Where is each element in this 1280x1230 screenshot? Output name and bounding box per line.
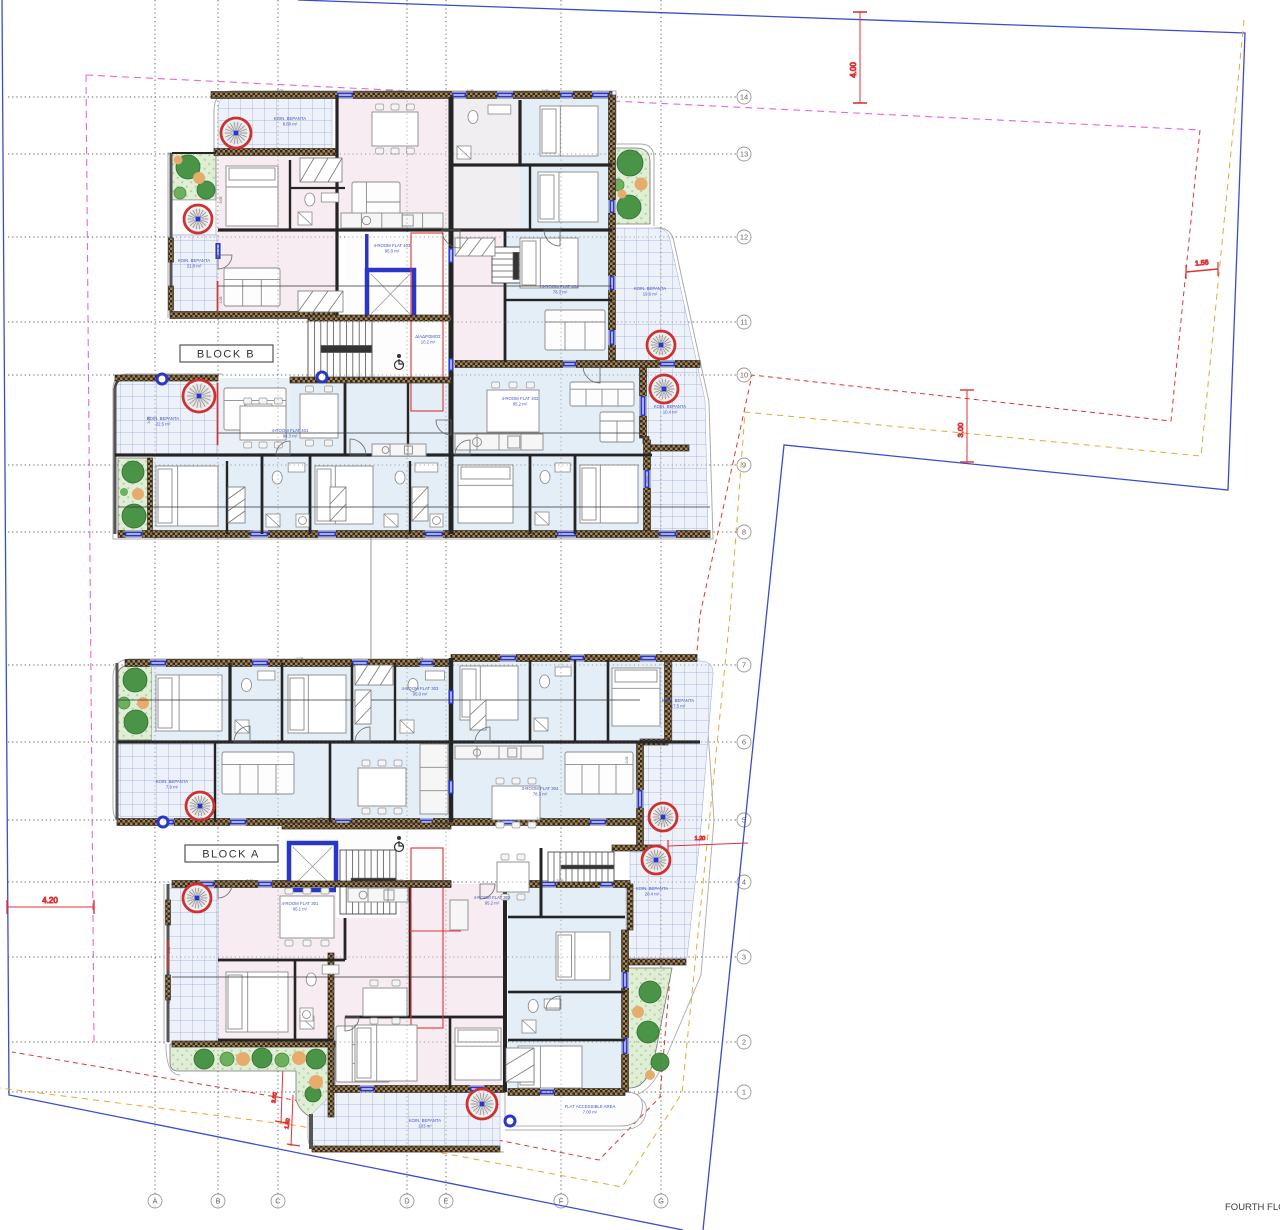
- svg-text:8: 8: [742, 528, 746, 537]
- svg-text:3.05: 3.05: [387, 89, 394, 93]
- svg-text:3.05: 3.05: [537, 657, 544, 661]
- svg-text:3.05: 3.05: [167, 947, 171, 954]
- svg-text:12: 12: [740, 233, 748, 242]
- svg-text:3.05: 3.05: [377, 1085, 384, 1089]
- svg-text:3.05: 3.05: [447, 1145, 454, 1149]
- svg-text:8.80 m²: 8.80 m²: [283, 122, 298, 127]
- svg-text:BLOCK B: BLOCK B: [197, 349, 255, 361]
- svg-text:3.05: 3.05: [297, 657, 304, 661]
- svg-text:BLOCK A: BLOCK A: [202, 849, 260, 861]
- svg-text:7.00 m²: 7.00 m²: [583, 1110, 598, 1115]
- svg-text:11: 11: [740, 318, 748, 327]
- svg-text:10.2 m²: 10.2 m²: [421, 340, 436, 345]
- svg-text:ΚΟΙΝ. ΒΕΡΑΝΤΑ: ΚΟΙΝ. ΒΕΡΑΝΤΑ: [274, 116, 306, 121]
- svg-text:3-ROOM FLAT 404: 3-ROOM FLAT 404: [542, 284, 579, 289]
- svg-text:ΚΟΙΝ. ΒΕΡΑΝΤΑ: ΚΟΙΝ. ΒΕΡΑΝΤΑ: [147, 416, 179, 421]
- svg-text:4-ROOM FLAT 403: 4-ROOM FLAT 403: [374, 243, 411, 248]
- svg-text:9: 9: [742, 461, 746, 470]
- svg-text:ΔΙΑΔΡΟΜΟΣ: ΔΙΑΔΡΟΜΟΣ: [415, 334, 441, 339]
- svg-text:22.5 m²: 22.5 m²: [156, 422, 171, 427]
- svg-text:95.0 m²: 95.0 m²: [413, 692, 428, 697]
- svg-text:95.2 m²: 95.2 m²: [513, 402, 528, 407]
- svg-text:4: 4: [742, 878, 746, 887]
- svg-text:1: 1: [742, 1088, 746, 1097]
- svg-text:3.05: 3.05: [467, 89, 474, 93]
- svg-text:20.4 m²: 20.4 m²: [645, 892, 660, 897]
- svg-text:2: 2: [742, 1038, 746, 1047]
- svg-text:3.05: 3.05: [219, 297, 223, 304]
- svg-text:3.05: 3.05: [147, 417, 151, 424]
- svg-text:FLAT ACCESSIBLE AREA: FLAT ACCESSIBLE AREA: [565, 1104, 616, 1109]
- svg-text:103 m²: 103 m²: [418, 1124, 432, 1129]
- svg-text:1.56: 1.56: [1195, 259, 1209, 267]
- svg-text:ΚΟΙΝ. ΒΕΡΑΝΤΑ: ΚΟΙΝ. ΒΕΡΑΝΤΑ: [636, 886, 668, 891]
- svg-text:10: 10: [740, 371, 748, 380]
- svg-text:4-ROOM FLAT 303: 4-ROOM FLAT 303: [402, 686, 439, 691]
- svg-text:3: 3: [742, 953, 746, 962]
- svg-text:4-ROOM FLAT 301: 4-ROOM FLAT 301: [282, 901, 319, 906]
- svg-text:4-ROOM FLAT 402: 4-ROOM FLAT 402: [502, 396, 539, 401]
- svg-text:FOURTH FLOOR PLAN: FOURTH FLOOR PLAN: [1225, 1202, 1280, 1213]
- svg-text:7: 7: [742, 661, 746, 670]
- svg-text:94.3 m²: 94.3 m²: [283, 434, 298, 439]
- svg-text:ΚΟΙΝ. ΒΕΡΑΝΤΑ: ΚΟΙΝ. ΒΕΡΑΝΤΑ: [156, 779, 188, 784]
- svg-text:ΚΟΙΝ. ΒΕΡΑΝΤΑ: ΚΟΙΝ. ΒΕΡΑΝΤΑ: [178, 258, 210, 263]
- svg-text:3.05: 3.05: [625, 757, 629, 764]
- svg-text:3.05: 3.05: [219, 197, 223, 204]
- svg-text:3.05: 3.05: [637, 657, 644, 661]
- svg-text:ΚΟΙΝ. ΒΕΡΑΝΤΑ: ΚΟΙΝ. ΒΕΡΑΝΤΑ: [662, 698, 694, 703]
- svg-text:19.6 m²: 19.6 m²: [643, 292, 658, 297]
- svg-text:ΚΟΙΝ. ΒΕΡΑΝΤΑ: ΚΟΙΝ. ΒΕΡΑΝΤΑ: [409, 1118, 441, 1123]
- svg-text:4.00: 4.00: [849, 62, 858, 78]
- svg-text:1.20: 1.20: [695, 836, 706, 842]
- svg-text:95.0 m²: 95.0 m²: [385, 249, 400, 254]
- svg-text:78.3 m²: 78.3 m²: [553, 290, 568, 295]
- svg-text:3.05: 3.05: [612, 297, 616, 304]
- svg-text:21.8 m²: 21.8 m²: [187, 264, 202, 269]
- svg-text:3.00: 3.00: [956, 423, 965, 438]
- svg-text:17.5 m²: 17.5 m²: [671, 704, 686, 709]
- svg-text:7.9 m²: 7.9 m²: [166, 785, 179, 790]
- svg-text:10.4 m²: 10.4 m²: [663, 410, 678, 415]
- svg-text:95.1 m²: 95.1 m²: [293, 907, 308, 912]
- svg-text:3.05: 3.05: [167, 997, 171, 1004]
- svg-text:3.05: 3.05: [347, 1145, 354, 1149]
- svg-text:3.05: 3.05: [397, 879, 404, 883]
- svg-text:4-ROOM FLAT 401: 4-ROOM FLAT 401: [272, 428, 309, 433]
- svg-text:3.05: 3.05: [645, 477, 649, 484]
- svg-text:6: 6: [742, 738, 746, 747]
- svg-text:3.05: 3.05: [625, 937, 629, 944]
- svg-text:3-ROOM FLAT 304: 3-ROOM FLAT 304: [522, 786, 559, 791]
- svg-text:13: 13: [740, 150, 748, 159]
- svg-text:3.05: 3.05: [417, 657, 424, 661]
- svg-text:3.05: 3.05: [557, 1087, 564, 1091]
- svg-text:14: 14: [740, 93, 748, 102]
- svg-text:3.05: 3.05: [542, 89, 549, 93]
- svg-text:ΚΟΙΝ. ΒΕΡΑΝΤΑ: ΚΟΙΝ. ΒΕΡΑΝΤΑ: [654, 404, 686, 409]
- svg-text:3.05: 3.05: [612, 177, 616, 184]
- svg-text:4.20: 4.20: [42, 896, 58, 905]
- svg-text:95.2 m²: 95.2 m²: [485, 901, 500, 906]
- svg-text:78.3 m²: 78.3 m²: [533, 792, 548, 797]
- svg-text:4-ROOM FLAT 302: 4-ROOM FLAT 302: [474, 895, 511, 900]
